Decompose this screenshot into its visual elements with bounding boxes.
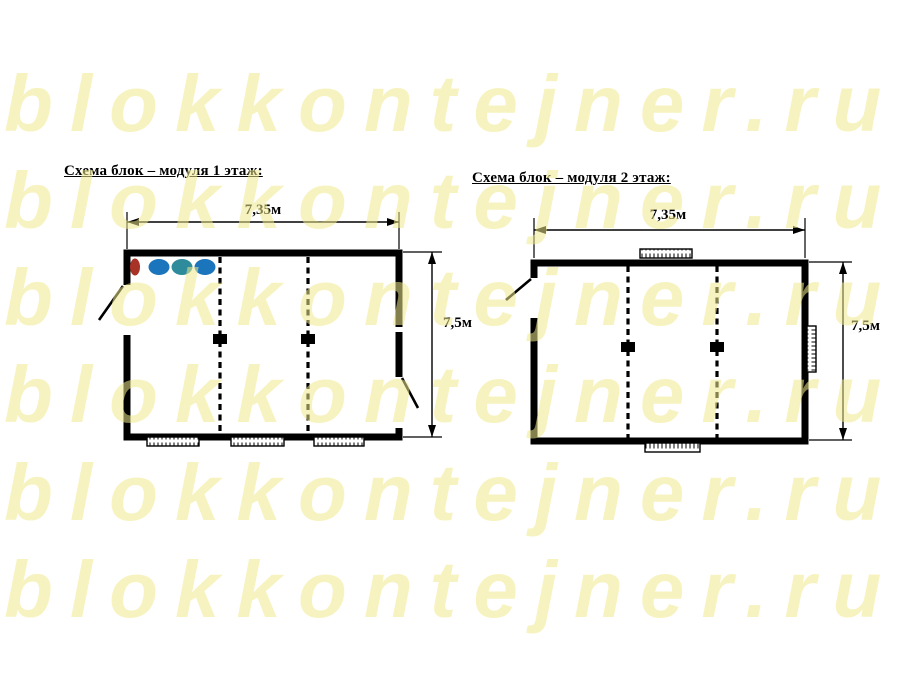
floor1-window-marker bbox=[147, 437, 199, 446]
floor-plans-canvas: 7,35м 7,5м bbox=[0, 0, 900, 675]
floor2-plan: 7,35м 7,5м bbox=[506, 207, 880, 452]
floor1-window-marker bbox=[231, 437, 284, 446]
floor1-window-marker bbox=[314, 437, 364, 446]
floor1-wall-outline bbox=[127, 253, 399, 437]
floor2-partition-door-marker bbox=[710, 342, 724, 352]
floor2-left-door-opening bbox=[526, 278, 539, 318]
floor1-width-dimension: 7,35м bbox=[127, 202, 399, 249]
floor2-height-dimension: 7,5м bbox=[809, 262, 880, 440]
floor1-title: Схема блок – модуля 1 этаж: bbox=[64, 163, 263, 180]
floor2-wall-outline bbox=[534, 263, 805, 441]
floor2-partition-door-marker bbox=[621, 342, 635, 352]
fixture-red-oval bbox=[130, 259, 140, 276]
floor2-window-marker bbox=[807, 326, 816, 372]
floor2-title: Схема блок – модуля 2 этаж: bbox=[472, 170, 671, 187]
floor-plan-page: Схема блок – модуля 1 этаж: Схема блок –… bbox=[0, 0, 900, 675]
floor2-width-dimension-label: 7,35м bbox=[650, 207, 686, 223]
fixture-blue-oval bbox=[195, 259, 216, 275]
floor1-partition-door-marker bbox=[301, 334, 315, 344]
floor2-height-dimension-label: 7,5м bbox=[851, 318, 880, 334]
fixture-blue-oval bbox=[149, 259, 170, 275]
floor1-right-door-opening bbox=[393, 377, 404, 428]
floor1-plan: 7,35м 7,5м bbox=[99, 202, 472, 446]
floor1-height-dimension-label: 7,5м bbox=[443, 315, 472, 331]
floor1-partition-door-marker bbox=[213, 334, 227, 344]
floor1-left-door-opening bbox=[119, 285, 132, 335]
floor1-right-door-swing-line bbox=[402, 378, 418, 408]
floor1-right-wall-joint bbox=[393, 327, 404, 332]
floor1-width-dimension-label: 7,35м bbox=[245, 202, 281, 218]
floor1-height-dimension: 7,5м bbox=[403, 252, 472, 437]
floor2-window-marker bbox=[645, 443, 700, 452]
floor2-window-marker bbox=[640, 249, 692, 258]
fixture-teal-oval bbox=[172, 259, 193, 275]
